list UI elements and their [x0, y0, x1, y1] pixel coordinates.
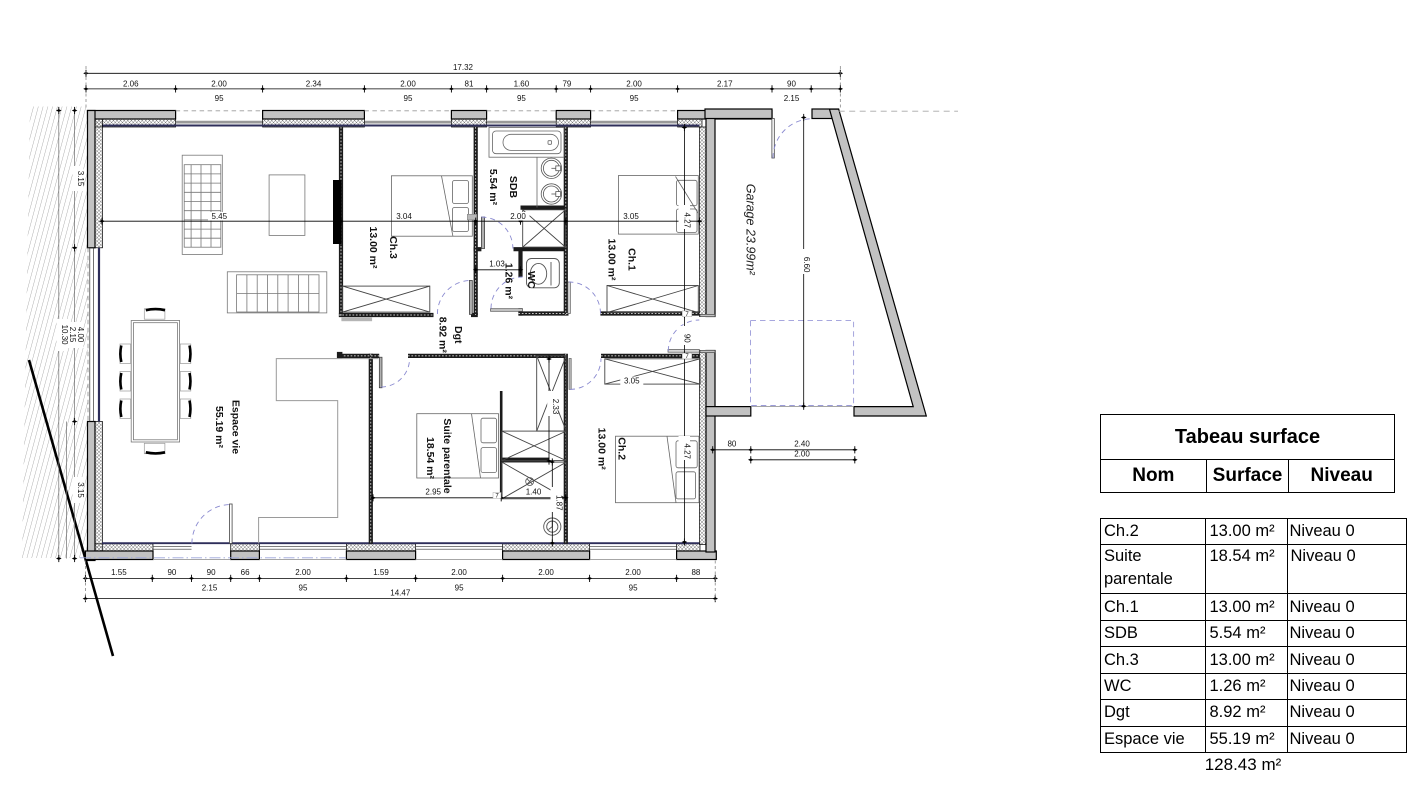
svg-text:5.45: 5.45 — [212, 212, 228, 221]
svg-text:3.04: 3.04 — [396, 212, 412, 221]
svg-text:2.95: 2.95 — [425, 487, 441, 496]
svg-text:14.47: 14.47 — [390, 588, 411, 597]
svg-text:6.60: 6.60 — [802, 257, 811, 273]
svg-text:90: 90 — [683, 334, 692, 343]
svg-text:2.15: 2.15 — [202, 584, 218, 593]
svg-text:4.27: 4.27 — [683, 212, 692, 228]
svg-text:Ch.1: Ch.1 — [625, 248, 637, 271]
svg-text:95: 95 — [215, 94, 224, 103]
svg-text:2.00: 2.00 — [626, 79, 642, 88]
svg-text:79: 79 — [562, 79, 571, 88]
svg-text:10.30: 10.30 — [60, 325, 69, 346]
svg-text:3.15: 3.15 — [76, 482, 85, 498]
svg-text:2.40: 2.40 — [794, 439, 810, 448]
svg-text:Ch.3: Ch.3 — [387, 236, 399, 259]
svg-text:1.40: 1.40 — [526, 487, 542, 496]
svg-text:55.19 m²: 55.19 m² — [213, 406, 225, 449]
svg-text:95: 95 — [455, 584, 464, 593]
svg-text:2.00: 2.00 — [211, 79, 227, 88]
svg-text:Espace vie: Espace vie — [229, 400, 241, 454]
svg-text:81: 81 — [465, 79, 474, 88]
svg-text:95: 95 — [629, 584, 638, 593]
svg-text:3.05: 3.05 — [624, 376, 640, 385]
svg-text:3.05: 3.05 — [623, 212, 639, 221]
svg-text:90: 90 — [207, 568, 216, 577]
svg-text:2.06: 2.06 — [123, 79, 139, 88]
svg-text:5.54 m²: 5.54 m² — [487, 169, 499, 206]
svg-text:66: 66 — [241, 568, 250, 577]
svg-text:3.15: 3.15 — [76, 171, 85, 187]
svg-text:Dgt: Dgt — [452, 326, 464, 344]
svg-text:Ch.2: Ch.2 — [615, 437, 627, 460]
svg-text:95: 95 — [299, 584, 308, 593]
svg-text:13.00 m²: 13.00 m² — [367, 226, 379, 269]
svg-text:95: 95 — [630, 94, 639, 103]
svg-text:2.00: 2.00 — [400, 79, 416, 88]
svg-text:1.60: 1.60 — [514, 79, 530, 88]
svg-text:1.87: 1.87 — [555, 495, 564, 511]
svg-text:95: 95 — [517, 94, 526, 103]
svg-text:2.00: 2.00 — [295, 568, 311, 577]
svg-text:17.32: 17.32 — [453, 63, 474, 72]
svg-text:90: 90 — [167, 568, 176, 577]
svg-text:WC: WC — [525, 271, 537, 289]
svg-text:13.00 m²: 13.00 m² — [596, 428, 608, 471]
svg-text:8.92 m²: 8.92 m² — [436, 317, 448, 354]
svg-text:13.00 m²: 13.00 m² — [605, 238, 617, 281]
svg-text:Suite parentale: Suite parentale — [441, 418, 453, 493]
svg-text:2.00: 2.00 — [510, 212, 526, 221]
svg-text:1.55: 1.55 — [111, 568, 127, 577]
svg-text:2.15: 2.15 — [784, 94, 800, 103]
svg-text:95: 95 — [404, 94, 413, 103]
svg-text:18.54 m²: 18.54 m² — [424, 437, 436, 480]
svg-text:2.00: 2.00 — [538, 568, 554, 577]
svg-text:1.59: 1.59 — [373, 568, 389, 577]
svg-text:2.34: 2.34 — [306, 79, 322, 88]
svg-text:4.27: 4.27 — [683, 443, 692, 459]
svg-text:SDB: SDB — [507, 176, 519, 199]
svg-text:80: 80 — [727, 439, 736, 448]
svg-text:1.26 m²: 1.26 m² — [503, 263, 515, 300]
svg-text:Garage 23.99m²: Garage 23.99m² — [744, 184, 758, 276]
svg-text:88: 88 — [691, 568, 700, 577]
svg-text:90: 90 — [787, 79, 796, 88]
svg-text:2.00: 2.00 — [451, 568, 467, 577]
svg-text:2.00: 2.00 — [625, 568, 641, 577]
svg-text:2.00: 2.00 — [794, 450, 810, 459]
svg-text:2.17: 2.17 — [717, 79, 733, 88]
svg-text:2.33: 2.33 — [551, 399, 560, 415]
